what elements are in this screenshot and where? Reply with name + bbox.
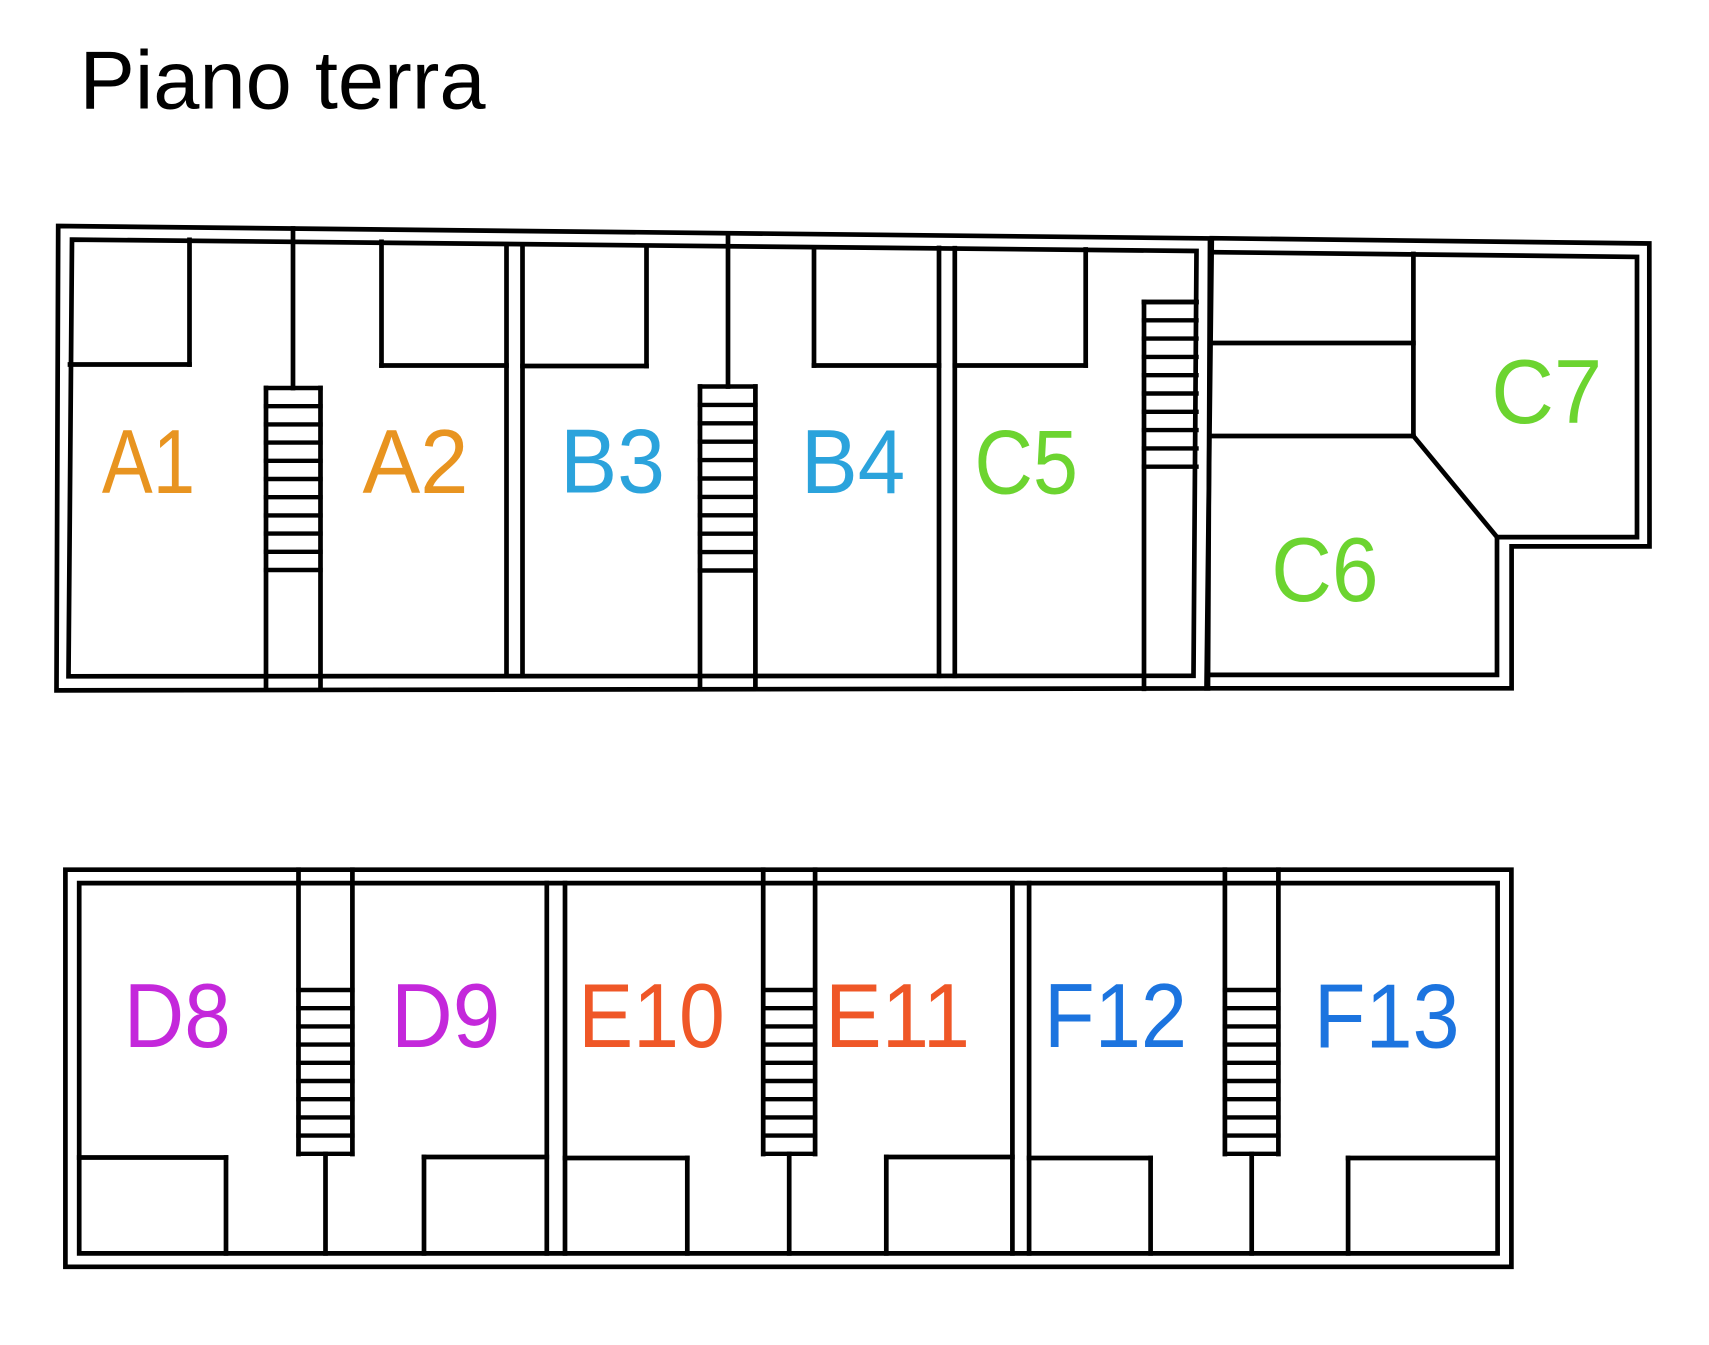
svg-text:A2: A2 [363, 412, 469, 513]
svg-text:A1: A1 [102, 412, 195, 513]
svg-text:F13: F13 [1314, 967, 1460, 1068]
svg-text:F12: F12 [1044, 966, 1187, 1067]
svg-text:D8: D8 [124, 966, 231, 1067]
svg-text:C5: C5 [974, 413, 1078, 514]
svg-text:D9: D9 [391, 966, 500, 1067]
svg-text:B4: B4 [801, 412, 905, 513]
svg-text:E10: E10 [578, 966, 725, 1067]
svg-text:C7: C7 [1491, 342, 1602, 443]
svg-text:Piano terra: Piano terra [80, 34, 487, 127]
svg-text:C6: C6 [1271, 520, 1378, 621]
svg-text:B3: B3 [560, 411, 665, 512]
svg-text:E11: E11 [825, 966, 970, 1067]
